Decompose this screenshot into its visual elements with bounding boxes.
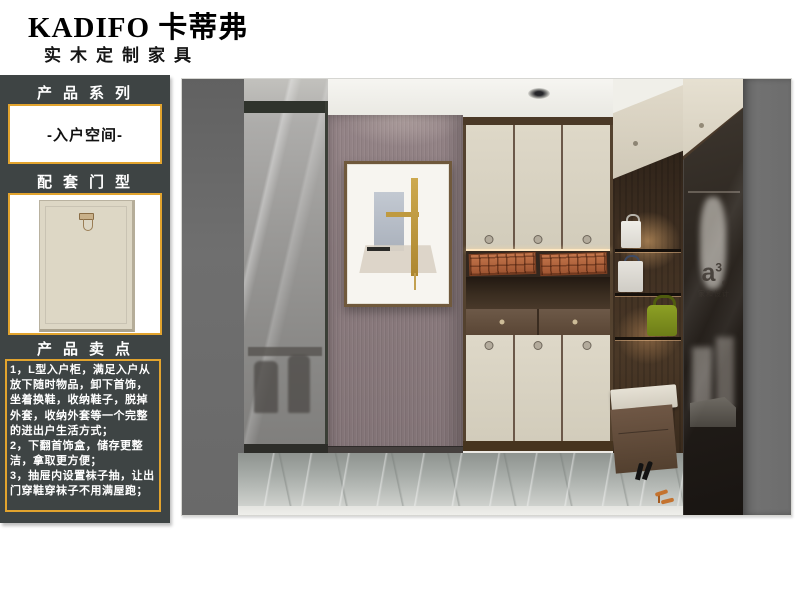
art-gold-bar-vertical [411, 178, 418, 276]
shelf-edge [615, 337, 681, 340]
interior-photo: a3® 家和设计 [181, 78, 792, 516]
shelf-edge [615, 249, 681, 252]
series-value-box: -入户空间- [8, 104, 162, 164]
brand-logo: KADIFO 卡蒂弗 [28, 4, 248, 46]
open-niche [466, 277, 610, 309]
selling-points-box: 1，L型入户柜，满足入户从放下随时物品，卸下首饰，坐着换鞋，收纳鞋子，脱掉外套，… [5, 359, 161, 512]
dining-table-silhouette [248, 347, 322, 356]
door-handle-pull [83, 219, 93, 231]
door-pull-icon [534, 341, 543, 350]
jewelry-tray [469, 252, 537, 276]
chair-silhouette [254, 361, 278, 413]
door-pull-icon [633, 141, 638, 146]
left-gray-wall [182, 79, 244, 515]
cabinet-door [515, 335, 562, 441]
chair-silhouette [288, 355, 310, 413]
door-pull-icon [699, 123, 704, 128]
door-pull-icon [582, 341, 591, 350]
art-gold-tassel [414, 273, 416, 290]
glass-wardrobe: a3® 家和设计 [683, 79, 743, 515]
cabinet-door [563, 335, 610, 441]
drawer [466, 309, 537, 335]
bench-seam [618, 429, 668, 434]
white-bag [621, 221, 641, 248]
selling-point-3: 3，抽屉内设置袜子抽，让出门穿鞋穿袜子不用满屋跑； [10, 469, 156, 499]
drawer-row [466, 309, 610, 335]
glass-door-bottom-frame [244, 444, 328, 453]
cabinet-door [466, 335, 513, 441]
series-label: 产品系列 [0, 82, 170, 103]
orange-sandal [661, 497, 675, 504]
entry-cabinet [463, 117, 613, 451]
sidebar: 产品系列 -入户空间- 配套门型 产品卖点 1，L型入户柜，满足入户从放下随时物… [0, 75, 170, 523]
lower-cabinet-doors [466, 335, 610, 441]
sliding-glass-door [244, 79, 328, 453]
door-pull-icon [485, 341, 494, 350]
poster-page: KADIFO 卡蒂弗 实木定制家具 产品系列 -入户空间- 配套门型 产品卖点 … [0, 0, 800, 600]
bench-wood-body [610, 404, 677, 473]
selling-points-label: 产品卖点 [0, 338, 170, 359]
cabinet-door [466, 125, 513, 249]
green-handbag [647, 305, 677, 336]
ceiling-spotlight [528, 88, 550, 99]
cabinet-door [515, 125, 562, 249]
jewelry-tray [540, 252, 608, 276]
drawer-knob-icon [572, 320, 577, 325]
orange-sandal [655, 489, 669, 497]
door-pull-icon [485, 235, 494, 244]
brand-tagline: 实木定制家具 [44, 41, 200, 66]
cabinet-base [463, 441, 613, 451]
art-gray-shape [374, 192, 405, 251]
glass-door-top-frame [244, 101, 328, 113]
door-type-label: 配套门型 [0, 171, 170, 192]
entry-bench [611, 379, 677, 515]
drawer-knob-icon [499, 320, 504, 325]
shopping-bag [618, 261, 643, 292]
wall-art-frame [344, 161, 452, 307]
door-pull-icon [534, 235, 543, 244]
door-panel-box [8, 193, 162, 335]
jewelry-tray-shelf [466, 251, 610, 277]
cabinet-door [563, 125, 610, 249]
selling-point-1: 1，L型入户柜，满足入户从放下随时物品，卸下首饰，坐着换鞋，收纳鞋子，脱掉外套，… [10, 363, 156, 439]
door-panel-image [39, 200, 135, 332]
drawer [539, 309, 610, 335]
door-pull-icon [582, 235, 591, 244]
selling-point-2: 2，下翻首饰盒，储存更整洁，拿取更方便； [10, 439, 156, 469]
upper-cabinet-doors [466, 125, 610, 249]
right-gray-wall [743, 79, 791, 515]
series-value: -入户空间- [47, 124, 123, 145]
cabinet-top-frame [463, 117, 613, 125]
art-black-dash [367, 247, 389, 251]
